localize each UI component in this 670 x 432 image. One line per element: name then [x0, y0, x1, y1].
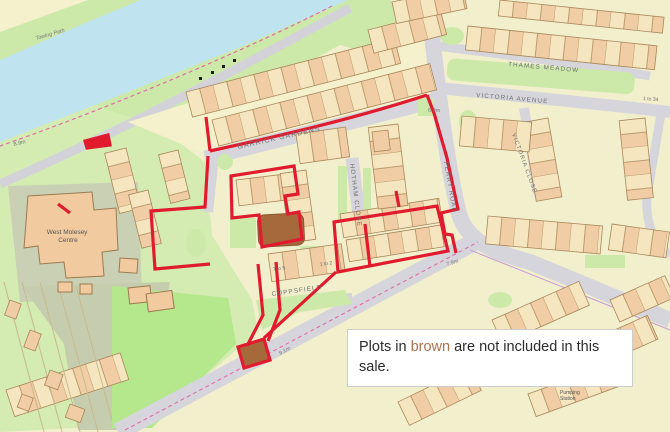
- plot-number: 1 to 34: [643, 96, 659, 103]
- sale-note-box: Plots in brown are not included in this …: [347, 329, 633, 387]
- sale-note-text-1: Plots in: [359, 339, 411, 355]
- spot-height: 6.9m: [428, 108, 441, 114]
- map-viewport: GARRICK GARDENS HOTHAM CLOSE FERRY ROAD …: [0, 0, 670, 432]
- sale-note-highlight: brown: [411, 339, 451, 355]
